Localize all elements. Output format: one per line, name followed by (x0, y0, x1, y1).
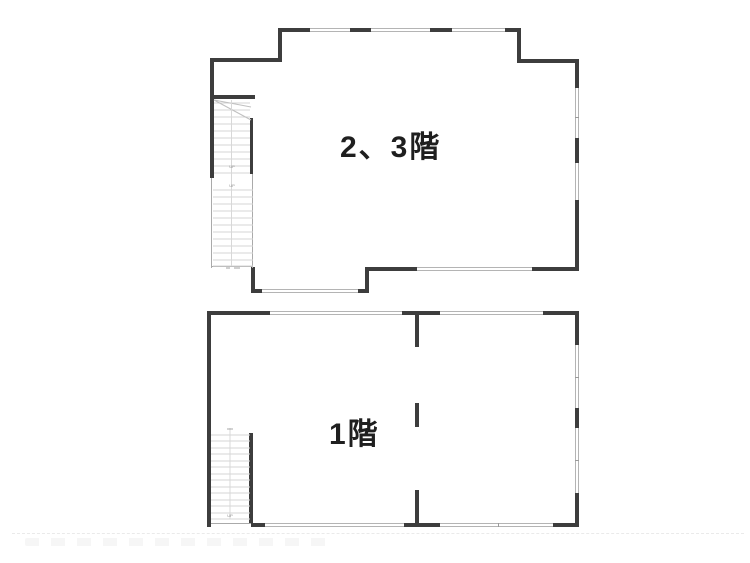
window-symbol (270, 311, 402, 315)
floorplan-image: UP UP 2、3階 (0, 0, 750, 563)
wall-segment (251, 267, 255, 293)
wall-segment (517, 28, 521, 63)
window-mullion-tick (575, 117, 579, 118)
wall-segment (251, 523, 265, 527)
window-mullion-tick (498, 523, 499, 527)
wall-segment (532, 267, 579, 271)
interior-wall-segment (415, 311, 419, 347)
wall-segment (278, 28, 282, 62)
wall-segment (365, 267, 417, 271)
window-symbol (452, 28, 505, 32)
thin-line (211, 523, 251, 524)
wall-segment (350, 28, 371, 32)
window-symbol (575, 88, 579, 138)
wall-segment (402, 311, 440, 315)
wall-segment (575, 408, 579, 428)
wall-segment (575, 59, 579, 88)
window-symbol (310, 28, 350, 32)
stair-mid-label: UP (224, 184, 240, 188)
scan-artifact-smudge (25, 538, 335, 546)
floor-label-lower: 1階 (329, 420, 380, 450)
interior-wall-segment (415, 490, 419, 527)
wall-segment (543, 311, 579, 315)
wall-segment (575, 311, 579, 345)
window-symbol (265, 523, 404, 527)
wall-segment (575, 138, 579, 163)
window-mullion-tick (575, 460, 579, 461)
floor-label-upper: 2、3階 (340, 133, 441, 163)
stair-up-label: UP (226, 165, 238, 169)
wall-segment (430, 28, 452, 32)
wall-segment (553, 523, 579, 527)
scan-artifact-line (12, 533, 744, 534)
wall-segment (210, 58, 282, 62)
staircase-lower (207, 426, 253, 523)
wall-segment (278, 28, 310, 32)
wall-segment (404, 523, 440, 527)
window-symbol (262, 289, 358, 293)
window-symbol (417, 267, 532, 271)
window-symbol (440, 311, 543, 315)
window-mullion-tick (575, 377, 579, 378)
wall-segment (575, 493, 579, 527)
wall-segment (517, 59, 579, 63)
wall-segment (207, 311, 270, 315)
wall-segment (358, 289, 369, 293)
window-symbol (371, 28, 430, 32)
window-symbol (575, 163, 579, 200)
window-symbol (440, 523, 553, 527)
interior-wall-segment (415, 403, 419, 427)
wall-segment (575, 200, 579, 271)
stair-up-label: UP (222, 514, 238, 518)
